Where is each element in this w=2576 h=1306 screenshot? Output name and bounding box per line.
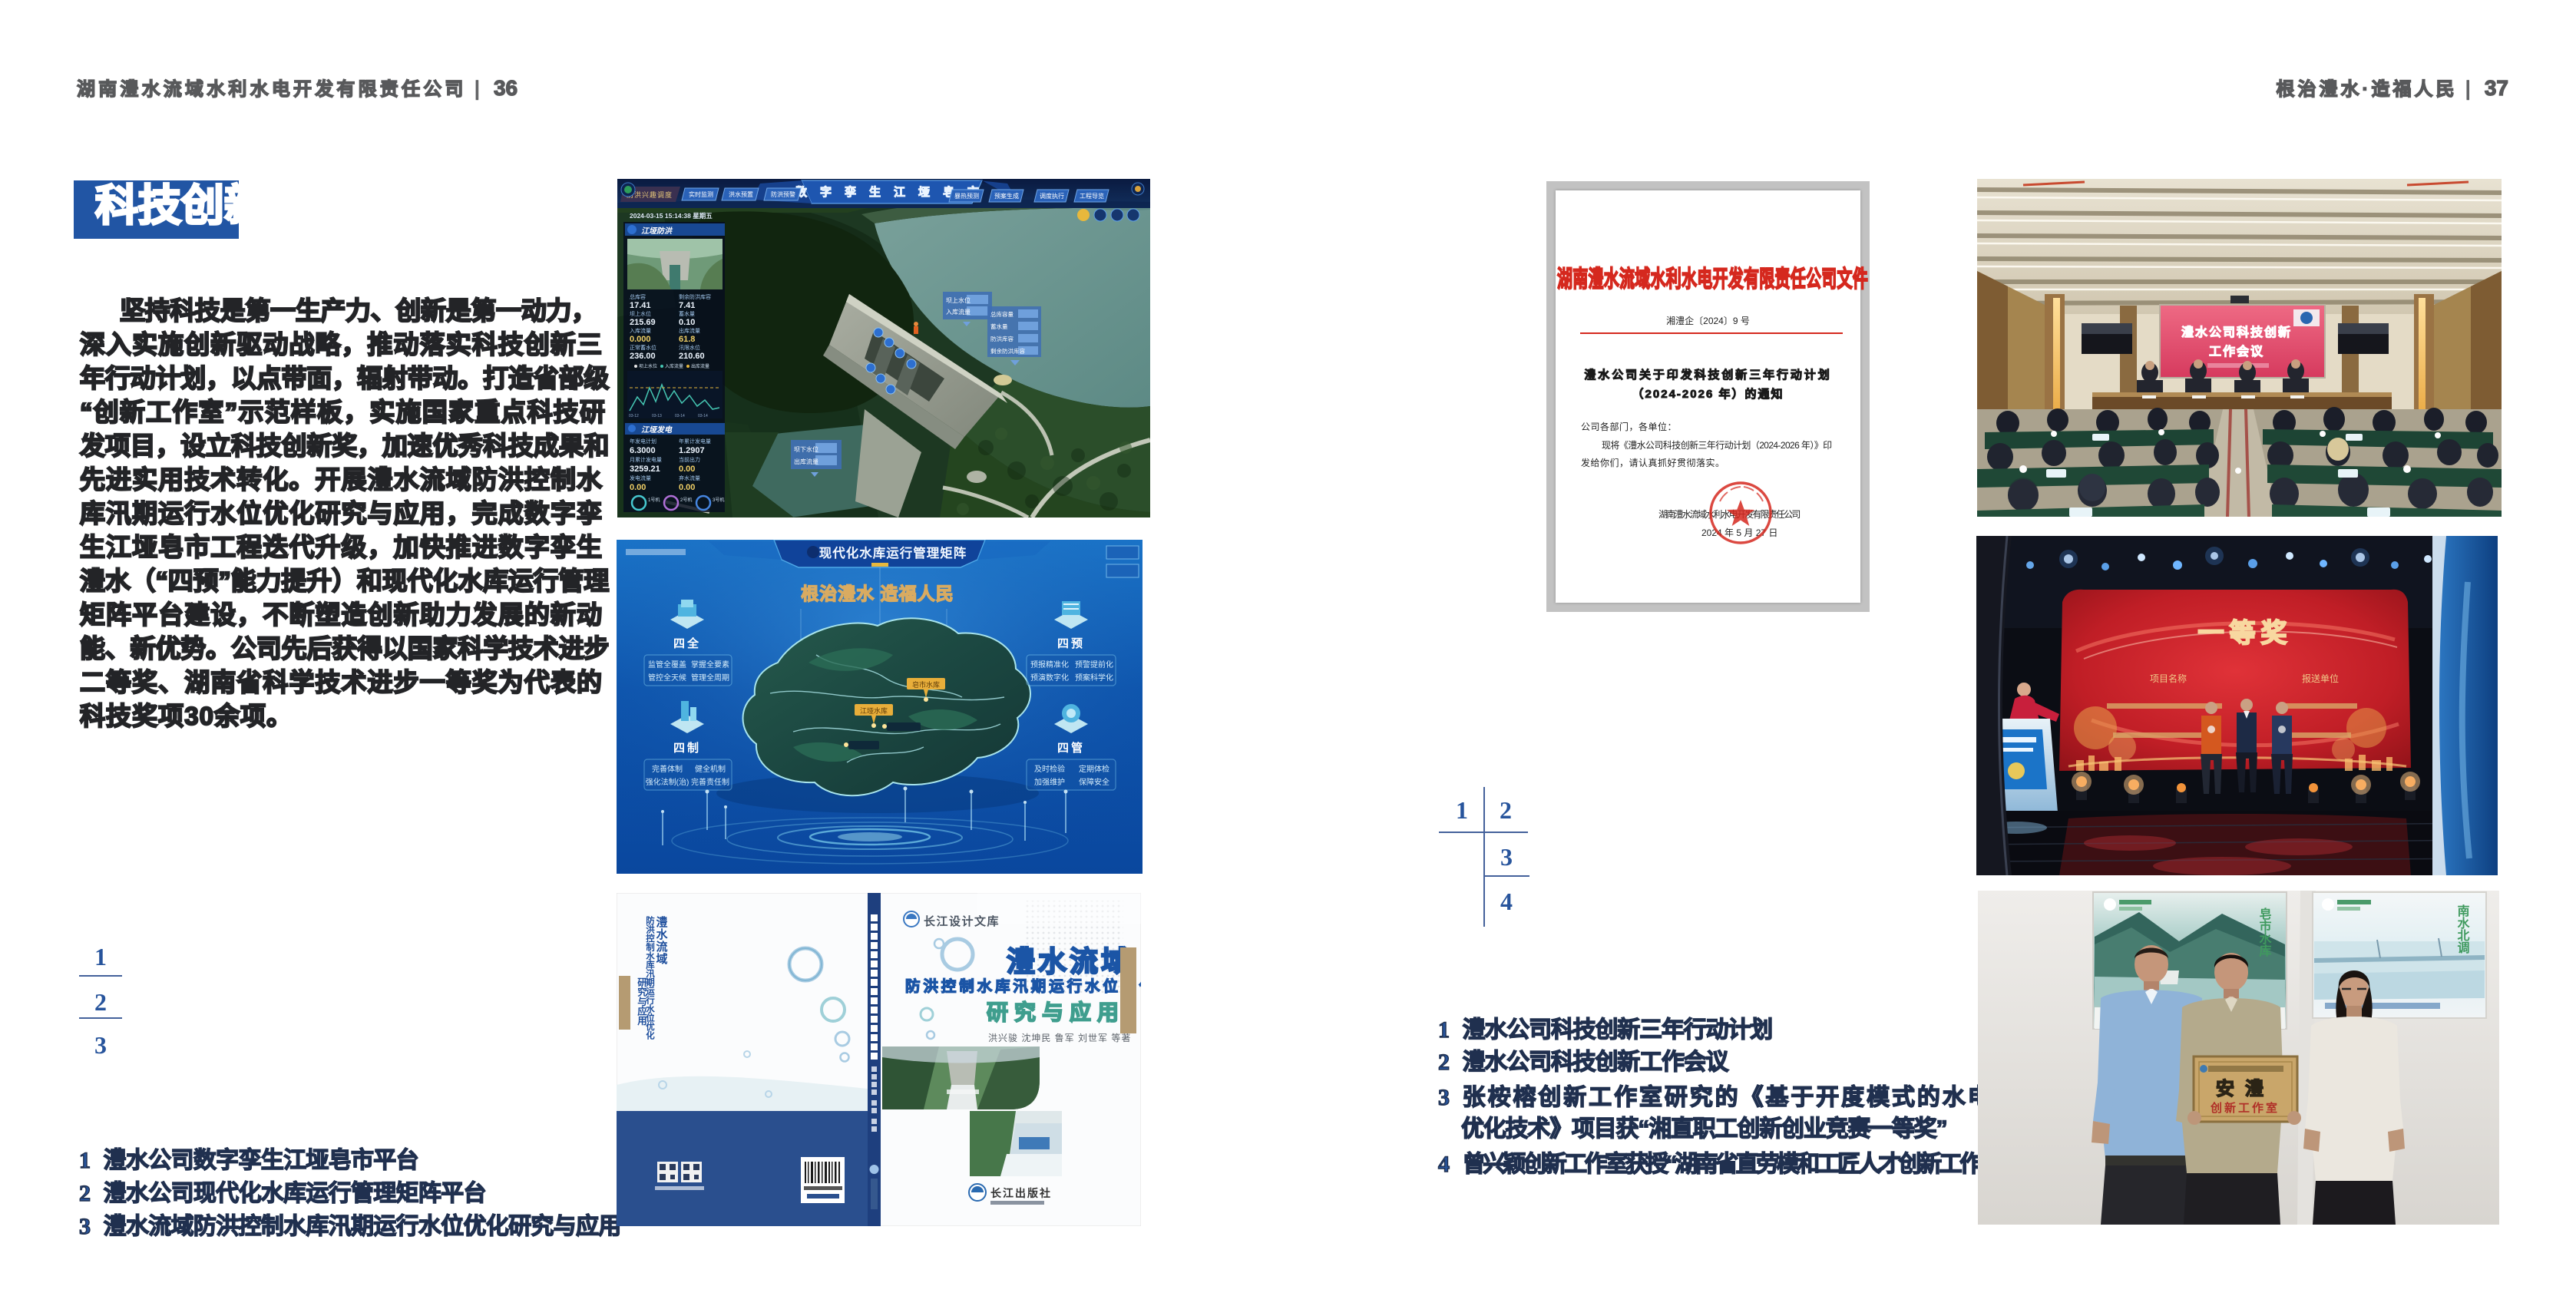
svg-text:总库容: 总库容 (630, 293, 646, 300)
svg-text:监管全覆盖: 监管全覆盖 (648, 660, 686, 670)
svg-text:根治澧水 造福人民: 根治澧水 造福人民 (801, 584, 954, 603)
svg-text:安澧: 安澧 (2216, 1078, 2274, 1099)
svg-text:及时检验: 及时检验 (1034, 764, 1065, 774)
svg-text:剩余防洪库容: 剩余防洪库容 (990, 347, 1025, 355)
svg-text:管控全天候: 管控全天候 (648, 673, 686, 683)
svg-text:坝下水位: 坝下水位 (794, 445, 818, 453)
svg-text:管理全周期: 管理全周期 (691, 673, 729, 683)
svg-text:0.00: 0.00 (679, 483, 695, 492)
svg-text:完善体制: 完善体制 (652, 764, 683, 774)
svg-text:暴热预测: 暴热预测 (954, 192, 979, 200)
svg-text:四全: 四全 (673, 636, 701, 650)
svg-text:0.00: 0.00 (679, 465, 695, 474)
svg-text:调度执行: 调度执行 (1040, 192, 1064, 200)
svg-text:6.3000: 6.3000 (630, 446, 656, 455)
svg-text:四制: 四制 (673, 741, 701, 755)
svg-text:四预: 四预 (1057, 637, 1085, 650)
svg-text:坝上水位: 坝上水位 (630, 310, 651, 317)
svg-text:3259.21: 3259.21 (630, 465, 660, 474)
svg-text:年累计发电量: 年累计发电量 (679, 438, 711, 445)
svg-text:预报精准化: 预报精准化 (1030, 660, 1069, 670)
svg-text:南水北调: 南水北调 (2455, 904, 2470, 954)
svg-text:61.8: 61.8 (679, 335, 695, 344)
svg-text:防洪预警: 防洪预警 (771, 190, 795, 198)
svg-text:预演数字化: 预演数字化 (1030, 673, 1069, 683)
svg-text:出库流量: 出库流量 (679, 327, 700, 334)
svg-text:剩余防洪库容: 剩余防洪库容 (679, 293, 711, 300)
svg-text:强化法制(治): 强化法制(治) (646, 777, 689, 787)
svg-text:工程导览: 工程导览 (1080, 192, 1104, 200)
svg-text:1号机: 1号机 (648, 497, 660, 503)
svg-text:现代化水库运行管理矩阵: 现代化水库运行管理矩阵 (819, 545, 967, 560)
svg-text:研究与应用: 研究与应用 (636, 977, 647, 1026)
svg-text:掌握全要素: 掌握全要素 (691, 660, 729, 670)
svg-text:保障安全: 保障安全 (1079, 777, 1109, 787)
svg-text:210.60: 210.60 (679, 352, 705, 361)
svg-text:236.00: 236.00 (630, 352, 656, 361)
svg-text:江垭水库: 江垭水库 (860, 706, 888, 715)
svg-text:总库容量: 总库容量 (990, 310, 1014, 318)
svg-text:2号机: 2号机 (680, 497, 692, 503)
svg-text:入库流量: 入库流量 (630, 327, 651, 334)
svg-text:215.69: 215.69 (630, 318, 656, 327)
svg-text:汛限水位: 汛限水位 (679, 344, 700, 351)
svg-text:长江设计文库: 长江设计文库 (924, 914, 1000, 928)
svg-text:澧水流域: 澧水流域 (655, 915, 668, 965)
svg-text:当前出力: 当前出力 (679, 456, 700, 463)
svg-text:出库流量: 出库流量 (794, 458, 818, 465)
svg-text:预案生成: 预案生成 (994, 192, 1019, 200)
svg-text:入库流量: 入库流量 (665, 363, 683, 369)
svg-text:弃水流量: 弃水流量 (679, 474, 700, 481)
svg-text:洪兴骏 沈坤民 鲁军 刘世军 等著: 洪兴骏 沈坤民 鲁军 刘世军 等著 (988, 1032, 1131, 1043)
svg-text:1.2907: 1.2907 (679, 446, 705, 455)
svg-text:17.41: 17.41 (630, 301, 651, 310)
svg-text:防洪控制水库汛期运行水位优化: 防洪控制水库汛期运行水位优化 (645, 915, 656, 1040)
svg-text:年发电计划: 年发电计划 (630, 438, 656, 445)
svg-text:江垭发电: 江垭发电 (641, 425, 673, 435)
svg-text:2024-03-15 15:14:38 星期五: 2024-03-15 15:14:38 星期五 (630, 212, 713, 220)
svg-text:坝上水位: 坝上水位 (946, 296, 971, 304)
svg-text:一等奖: 一等奖 (2198, 619, 2293, 648)
svg-text:03-13: 03-13 (652, 414, 662, 418)
svg-text:蓄水量: 蓄水量 (990, 322, 1008, 330)
svg-text:澧水公司科技创新: 澧水公司科技创新 (2181, 325, 2292, 339)
svg-text:出库流量: 出库流量 (691, 363, 709, 369)
svg-text:研究与应用: 研究与应用 (987, 1000, 1125, 1024)
svg-text:0.10: 0.10 (679, 318, 695, 327)
svg-text:工作会议: 工作会议 (2209, 344, 2264, 359)
svg-text:创新工作室: 创新工作室 (2210, 1101, 2280, 1115)
svg-text:四管: 四管 (1057, 741, 1085, 755)
svg-text:正常蓄水位: 正常蓄水位 (630, 344, 656, 351)
svg-text:03-14: 03-14 (675, 414, 685, 418)
svg-text:江垭防洪: 江垭防洪 (641, 226, 673, 236)
svg-text:澧水流域: 澧水流域 (1007, 946, 1133, 977)
svg-text:洪水预置: 洪水预置 (729, 190, 753, 198)
svg-text:0.00: 0.00 (630, 483, 646, 492)
svg-text:长江出版社: 长江出版社 (990, 1187, 1052, 1199)
svg-text:皂市水库: 皂市水库 (2257, 907, 2272, 957)
svg-text:项目名称: 项目名称 (2150, 673, 2187, 684)
svg-text:实时监测: 实时监测 (689, 190, 713, 198)
svg-text:防洪控制水库汛期运行水位优化: 防洪控制水库汛期运行水位优化 (905, 977, 1141, 995)
svg-text:月累计发电量: 月累计发电量 (630, 456, 662, 463)
svg-text:发电流量: 发电流量 (630, 474, 651, 481)
svg-text:健全机制: 健全机制 (695, 764, 726, 774)
svg-text:坝上水位: 坝上水位 (639, 363, 657, 369)
svg-text:防洪库容: 防洪库容 (990, 335, 1014, 342)
svg-text:入库流量: 入库流量 (946, 308, 971, 316)
svg-text:预警提前化: 预警提前化 (1075, 660, 1113, 670)
svg-text:报送单位: 报送单位 (2302, 673, 2339, 684)
svg-text:0.000: 0.000 (630, 335, 651, 344)
svg-text:加强维护: 加强维护 (1034, 777, 1065, 787)
svg-text:预案科学化: 预案科学化 (1075, 673, 1113, 683)
svg-text:03-12: 03-12 (629, 414, 639, 418)
svg-text:完善责任制: 完善责任制 (691, 777, 729, 787)
svg-text:03-14: 03-14 (698, 414, 708, 418)
svg-text:皂市水库: 皂市水库 (912, 680, 940, 689)
svg-text:蓄水量: 蓄水量 (679, 310, 695, 317)
svg-text:定期体检: 定期体检 (1079, 764, 1109, 774)
svg-text:3号机: 3号机 (713, 497, 724, 503)
svg-text:7.41: 7.41 (679, 301, 695, 310)
